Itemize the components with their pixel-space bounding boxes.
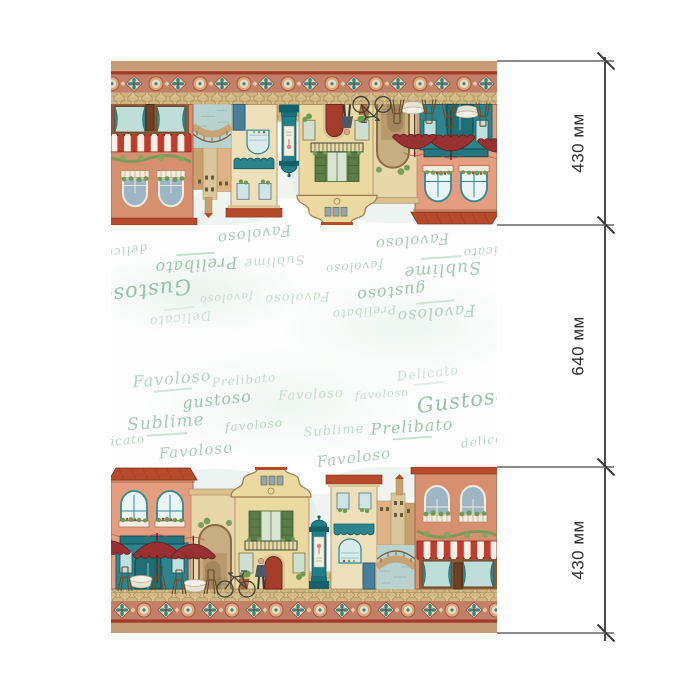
decor-word: Favoloso <box>396 302 476 325</box>
building-cream-shop <box>226 104 282 217</box>
dimension-line <box>604 57 606 641</box>
decor-word: Prelibato <box>154 254 238 276</box>
decor-word: delicato <box>460 430 497 450</box>
decor-word: Sublime <box>127 412 206 434</box>
decor-word-caption <box>146 432 187 437</box>
building-salmon-cafe <box>411 104 497 224</box>
decor-word: Favoloso <box>374 230 449 251</box>
decor-word-caption <box>413 381 444 386</box>
decor-word: Sublime <box>243 252 305 269</box>
building-salmon-cafe <box>111 468 197 589</box>
dimension-label-top: 430 мм <box>556 61 602 225</box>
decor-word: Delicato <box>148 308 212 327</box>
decor-word-caption <box>176 252 214 257</box>
decor-word: Favoloso <box>132 368 212 391</box>
decor-word: gustoso <box>182 388 253 411</box>
product-image: DelicatoFavolosoPrelibatogustosoFavoloso… <box>0 0 700 700</box>
decor-word: Favoloso <box>216 225 292 246</box>
words-top-inverted: DelicatoFavolosoPrelibatogustosoFavoloso… <box>111 225 497 346</box>
decor-word-caption <box>163 306 194 311</box>
words-bottom: DelicatoFavolosoPrelibatogustosoFavoloso… <box>111 346 497 467</box>
striped-awning <box>417 541 497 560</box>
decor-word-caption <box>421 255 462 260</box>
decor-word: Sublime <box>303 422 365 439</box>
decor-word: favoloso <box>325 258 384 275</box>
decor-word: Delicato <box>396 364 460 383</box>
dimension-label-bottom: 430 мм <box>556 467 602 633</box>
street-scene-illustration <box>111 467 497 633</box>
morris-column <box>309 515 329 589</box>
decor-word: Favoloso <box>316 446 392 467</box>
panel-top-scene-inverted <box>111 61 497 225</box>
ornamental-border <box>111 601 497 623</box>
panel-middle-words: DelicatoFavolosoPrelibatogustosoFavoloso… <box>111 225 497 467</box>
decor-word-caption <box>394 436 432 441</box>
decor-word: Prelibato <box>370 416 454 438</box>
morris-column <box>279 104 299 177</box>
decor-word: favoloso <box>199 291 254 306</box>
tan-edge-strip <box>111 623 497 633</box>
decor-word: favoloso <box>225 416 284 433</box>
decor-word: delicato <box>462 243 497 260</box>
decor-word: gustoso <box>356 280 427 303</box>
decor-word: Sublime <box>403 258 482 280</box>
fabric-panel: DelicatoFavolosoPrelibatogustosoFavoloso… <box>111 61 497 633</box>
decor-word: Gustoso <box>111 275 192 307</box>
decor-word-caption <box>416 299 454 304</box>
tan-edge-strip <box>111 61 497 71</box>
building-terracotta-awning <box>411 467 497 589</box>
striped-awning <box>111 133 191 152</box>
decor-word: Favoloso <box>158 440 233 461</box>
ornamental-border <box>111 71 497 93</box>
decor-word: Favoloso <box>278 387 344 403</box>
decor-word: favoloso <box>355 387 410 402</box>
decor-word: delicato <box>111 242 148 262</box>
panel-bottom-scene <box>111 467 497 633</box>
building-terracotta-awning <box>111 104 197 225</box>
stone-archway <box>189 489 241 589</box>
decor-word: delicato <box>111 433 146 450</box>
street-scene-illustration <box>111 61 497 225</box>
decor-word-caption <box>154 387 192 392</box>
decor-word: Gustoso <box>416 385 497 417</box>
building-cream-shop <box>326 475 382 589</box>
stone-archway <box>367 104 419 203</box>
decor-word: Prelibato <box>331 303 396 321</box>
decor-word: Favoloso <box>264 289 330 305</box>
dimension-label-middle: 640 мм <box>556 225 602 467</box>
